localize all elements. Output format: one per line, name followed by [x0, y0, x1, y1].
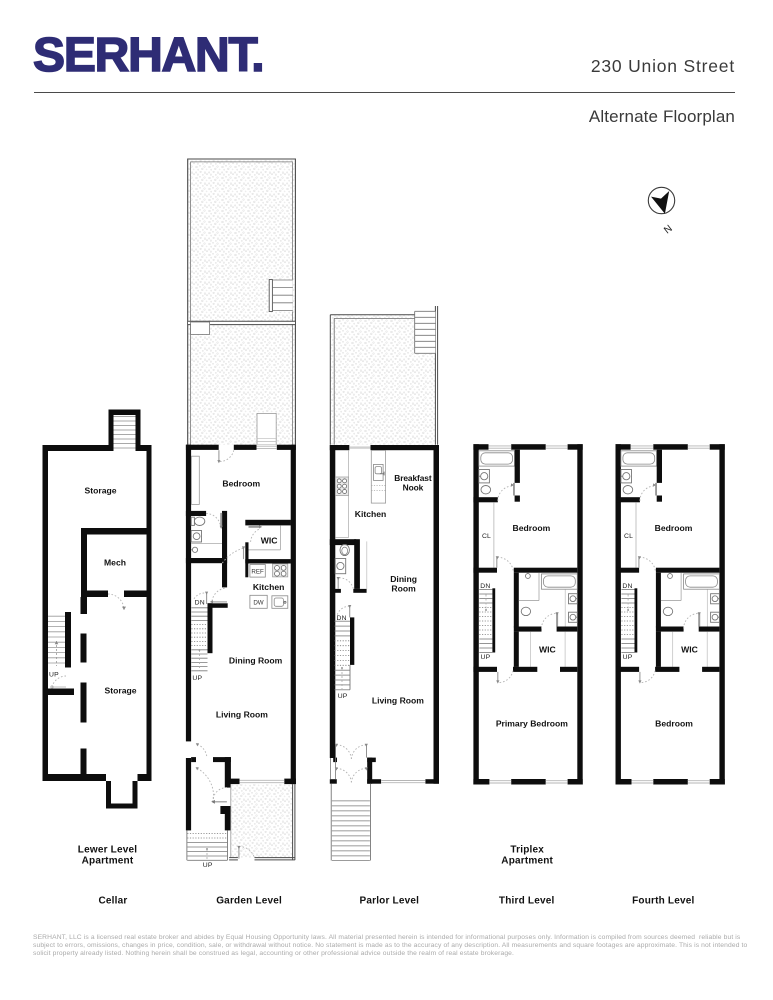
svg-text:Bedroom: Bedroom: [513, 523, 551, 533]
svg-text:UP: UP: [623, 654, 633, 661]
svg-text:Living Room: Living Room: [216, 709, 268, 719]
svg-text:UP: UP: [338, 693, 348, 700]
svg-text:REF: REF: [251, 568, 264, 575]
svg-text:Apartment: Apartment: [501, 855, 553, 866]
svg-text:UP: UP: [203, 862, 213, 869]
svg-text:Living Room: Living Room: [372, 696, 424, 706]
svg-text:Kitchen: Kitchen: [355, 509, 387, 519]
svg-text:DN: DN: [337, 615, 347, 622]
svg-text:Nook: Nook: [403, 483, 424, 493]
svg-text:Dining: Dining: [390, 574, 417, 584]
svg-text:UP: UP: [192, 675, 202, 682]
svg-text:Storage: Storage: [105, 686, 137, 696]
svg-text:Kitchen: Kitchen: [253, 582, 285, 592]
svg-text:Triplex: Triplex: [510, 845, 544, 856]
svg-text:Cellar: Cellar: [99, 896, 128, 907]
svg-text:CL: CL: [624, 533, 633, 540]
svg-text:Room: Room: [391, 583, 416, 593]
svg-text:Bedroom: Bedroom: [655, 523, 693, 533]
svg-text:WIC: WIC: [261, 535, 278, 545]
svg-text:Fourth Level: Fourth Level: [632, 896, 694, 907]
svg-text:Garden Level: Garden Level: [216, 896, 282, 907]
svg-text:UP: UP: [481, 654, 491, 661]
svg-text:N: N: [662, 223, 674, 236]
svg-text:Apartment: Apartment: [82, 856, 134, 867]
svg-text:WIC: WIC: [539, 645, 556, 655]
svg-text:DW: DW: [253, 600, 263, 607]
svg-text:DN: DN: [622, 583, 632, 590]
svg-text:Mech: Mech: [104, 558, 126, 568]
svg-text:Lewer Level: Lewer Level: [78, 845, 137, 856]
svg-text:UP: UP: [49, 672, 59, 679]
svg-text:Storage: Storage: [85, 486, 117, 496]
svg-text:CL: CL: [482, 533, 491, 540]
svg-text:Breakfast: Breakfast: [394, 473, 432, 483]
svg-text:WIC: WIC: [681, 645, 698, 655]
svg-text:Bedroom: Bedroom: [222, 478, 260, 488]
svg-text:DN: DN: [480, 583, 490, 590]
svg-text:DN: DN: [195, 600, 205, 607]
svg-text:Parlor Level: Parlor Level: [359, 896, 419, 907]
svg-text:Bedroom: Bedroom: [655, 718, 693, 728]
svg-text:Dining Room: Dining Room: [229, 655, 283, 665]
svg-text:Third Level: Third Level: [499, 896, 555, 907]
svg-text:Primary Bedroom: Primary Bedroom: [496, 718, 568, 728]
